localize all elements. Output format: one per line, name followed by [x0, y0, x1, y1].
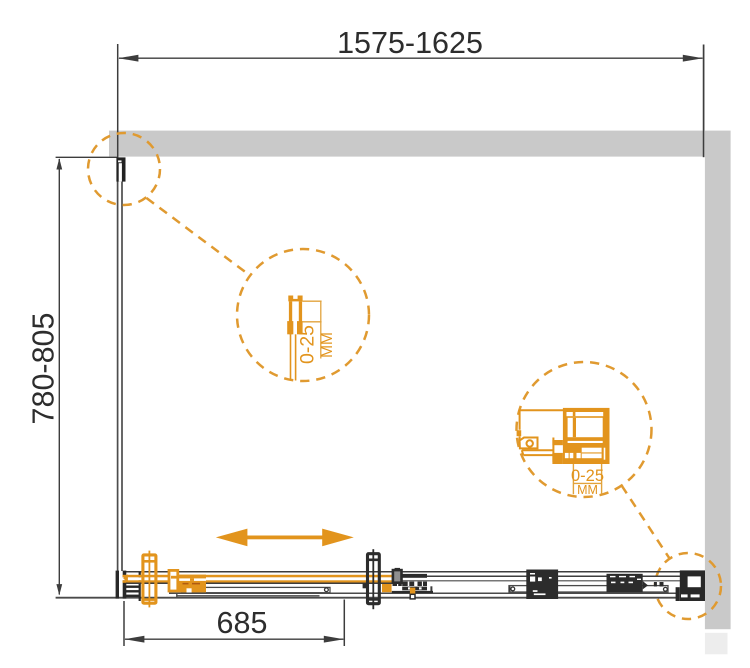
svg-text:685: 685 [217, 606, 268, 640]
svg-text:1575-1625: 1575-1625 [337, 26, 483, 60]
svg-text:0-25: 0-25 [297, 325, 319, 364]
svg-text:MM: MM [319, 332, 336, 358]
svg-text:MM: MM [577, 483, 598, 497]
svg-text:780-805: 780-805 [27, 313, 61, 425]
